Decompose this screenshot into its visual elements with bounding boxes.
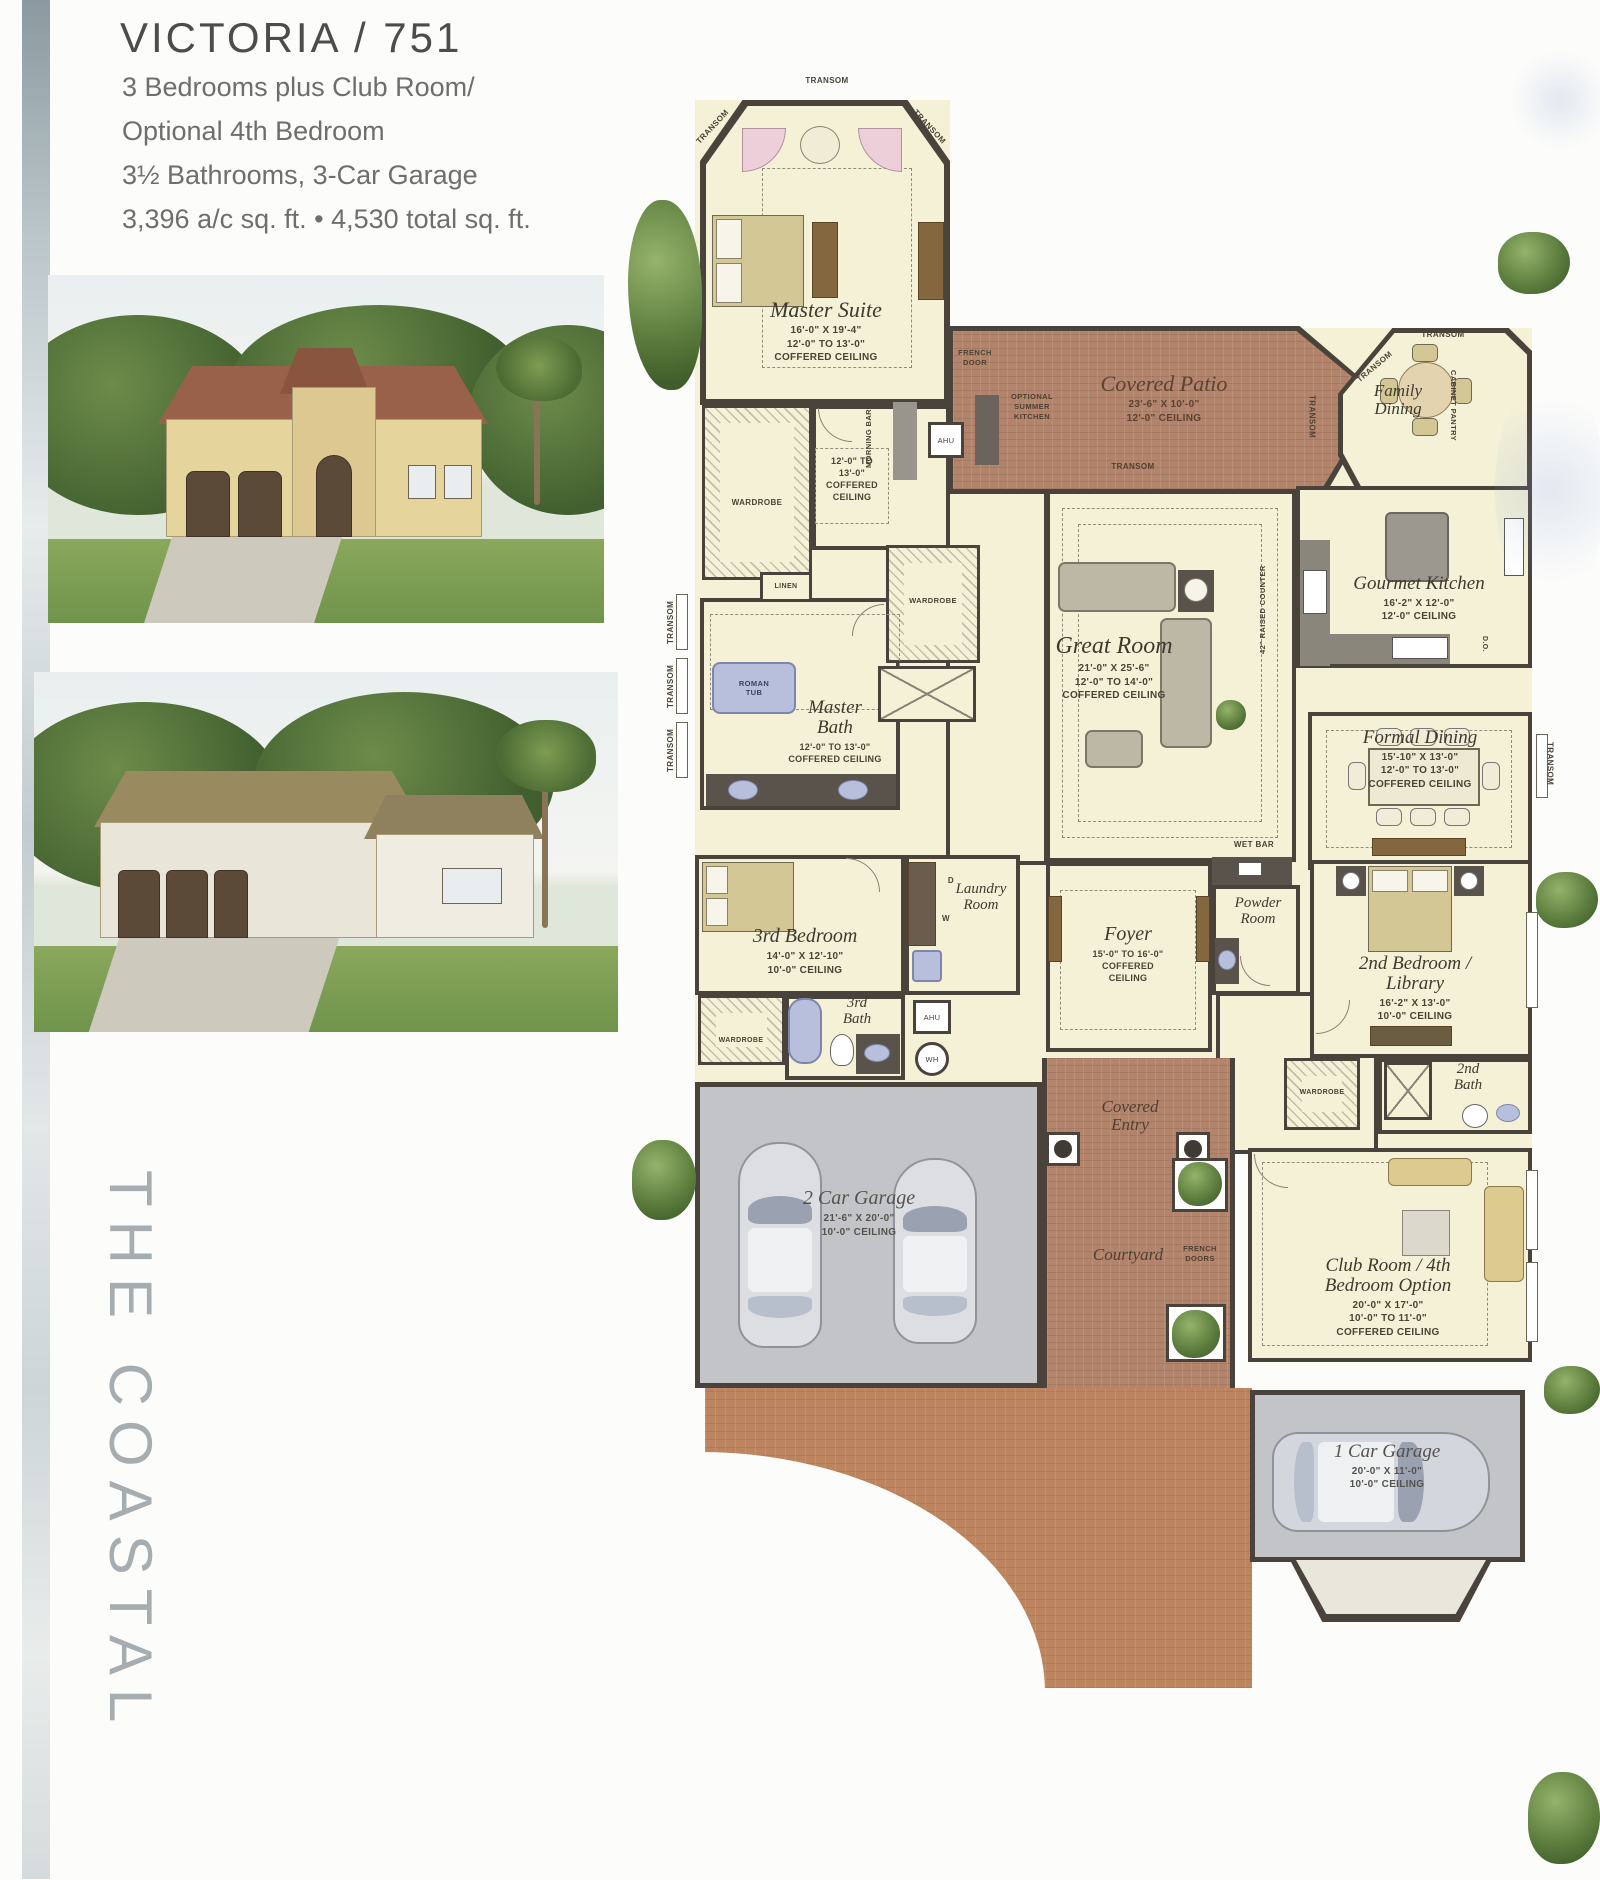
bay-table (800, 126, 840, 164)
chair (1444, 808, 1470, 826)
room-name: Master Suite (756, 298, 896, 321)
line: 12'-0" TO (818, 455, 886, 467)
room-name: Bath (822, 1012, 892, 1028)
column (1054, 1140, 1072, 1158)
room-ceiling: 12'-0" TO 13'-0" (1348, 764, 1492, 778)
do-label: D.O. (1480, 630, 1489, 658)
room-ceiling-type: COFFERED CEILING (1308, 1326, 1468, 1340)
pillow (716, 219, 742, 259)
room-dims: 21'-0" X 25'-6" (1028, 662, 1200, 676)
palm-canopy (496, 337, 582, 401)
console-table (1048, 896, 1062, 962)
room-dims: 16'-2" X 13'-0" (1340, 997, 1490, 1011)
transom-label: TRANSOM (666, 594, 676, 650)
chair (1410, 808, 1436, 826)
landscape-tree (1528, 1772, 1600, 1864)
room-dims: 21'-6" X 20'-0" (788, 1212, 930, 1226)
chair (1412, 344, 1438, 362)
plan-description-line-3: 3½ Bathrooms, 3-Car Garage (122, 160, 642, 191)
line: CEILING (1078, 972, 1178, 984)
third-bath-tub (788, 998, 822, 1064)
scan-artifact (1495, 370, 1600, 610)
line: COFFERED (818, 479, 886, 491)
lamp (1342, 872, 1360, 890)
summer-kitchen-counter (975, 395, 999, 465)
dresser (918, 222, 944, 300)
club-room-label: Club Room / 4th Bedroom Option 20'-0" X … (1308, 1256, 1468, 1339)
sofa (1058, 562, 1176, 612)
room-name: Bath (1438, 1078, 1498, 1094)
brochure-page: { "header": { "title": "VICTORIA / 751",… (0, 0, 1600, 1879)
dresser (1370, 1026, 1452, 1046)
sink (1218, 950, 1236, 970)
room-dims: 20'-0" X 17'-0" (1308, 1299, 1468, 1313)
pillow (706, 866, 728, 894)
room-ceiling: 12'-0" TO 13'-0" (756, 338, 896, 352)
lamp (1460, 872, 1478, 890)
car-roof (903, 1236, 967, 1292)
garage-door-bay (1296, 1560, 1486, 1614)
landscape-tree (1536, 872, 1598, 928)
palm-canopy (496, 720, 596, 792)
room-ceiling: 10'-0" CEILING (788, 1226, 930, 1240)
formal-dining-label: Formal Dining 15'-10" X 13'-0" 12'-0" TO… (1348, 728, 1492, 791)
exterior-rendering-2 (34, 672, 618, 1032)
chair (1376, 808, 1402, 826)
car-rear-window (1294, 1442, 1314, 1522)
washer (912, 950, 942, 982)
room-name: Bedroom Option (1308, 1276, 1468, 1296)
line: CEILING (818, 491, 886, 503)
french-door-label: FRENCH DOOR (950, 348, 1000, 368)
room-name: Club Room / 4th (1308, 1256, 1468, 1276)
entry-arch (316, 455, 352, 537)
transom-label: TRANSOM (1544, 734, 1554, 794)
room-dims: 20'-0" X 11'-0" (1322, 1465, 1452, 1479)
garage-door (166, 870, 208, 938)
courtyard-label: Courtyard (1078, 1246, 1178, 1264)
pillow (706, 898, 728, 926)
wardrobe-label: WARDROBE (712, 498, 802, 508)
summer-kitchen-label: OPTIONAL SUMMER KITCHEN (1002, 392, 1062, 421)
transom-label: TRANSOM (1306, 388, 1316, 446)
ahu-label: AHU (938, 436, 955, 445)
landscape-tree (1498, 232, 1570, 294)
water-heater: WH (915, 1042, 949, 1076)
second-bath-label: 2nd Bath (1438, 1062, 1498, 1094)
kitchen-sink (1392, 637, 1448, 659)
room-name: Covered (1082, 1098, 1178, 1116)
buffet (1372, 838, 1466, 856)
wh-label: WH (925, 1055, 938, 1064)
room-ceiling-type: COFFERED CEILING (1348, 778, 1492, 792)
dryer-label: D (946, 876, 956, 886)
scan-artifact (1510, 50, 1600, 150)
room-name: 1 Car Garage (1322, 1442, 1452, 1462)
wardrobe-label: WARDROBE (898, 596, 968, 606)
room-name: 2nd Bedroom / (1340, 954, 1490, 974)
third-bedroom-label: 3rd Bedroom 14'-0" X 12'-10" 10'-0" CEIL… (740, 926, 870, 977)
driveway (144, 537, 342, 623)
pillow (1372, 870, 1408, 892)
master-wardrobe-1 (702, 405, 812, 580)
window (1526, 1262, 1538, 1342)
line: COFFERED (1078, 960, 1178, 972)
wardrobe-label: WARDROBE (708, 1036, 774, 1045)
toilet (830, 1034, 854, 1066)
foyer-label: Foyer 15'-0" TO 16'-0" COFFERED CEILING (1078, 924, 1178, 984)
wardrobe-label: WARDROBE (1292, 1088, 1352, 1097)
sink (864, 1044, 890, 1062)
sink (1496, 1104, 1520, 1122)
covered-patio-label: Covered Patio 23'-6" X 10'-0" 12'-0" CEI… (1096, 372, 1232, 425)
garage-door (186, 471, 230, 537)
window (676, 658, 688, 714)
family-dining-label: Family Dining (1352, 382, 1444, 418)
plan-description-line-1: 3 Bedrooms plus Club Room/ (122, 72, 642, 103)
room-name: Formal Dining (1348, 728, 1492, 748)
room-ceiling: 12'-0" CEILING (1096, 412, 1232, 426)
room-ceiling: 10'-0" CEILING (740, 964, 870, 978)
room-ceiling: 10'-0" TO 11'-0" (1308, 1312, 1468, 1326)
plan-description-line-2: Optional 4th Bedroom (122, 116, 642, 147)
third-bath-label: 3rd Bath (822, 996, 892, 1028)
laundry-label: Laundry Room (942, 882, 1020, 914)
powder-label: Powder Room (1218, 896, 1298, 928)
great-room-label: Great Room 21'-0" X 25'-6" 12'-0" TO 14'… (1028, 634, 1200, 703)
ahu-closet-2: AHU (913, 1000, 951, 1034)
room-name: Great Room (1028, 634, 1200, 659)
garage-door (238, 471, 282, 537)
driveway (89, 938, 340, 1032)
palm-trunk (542, 768, 548, 928)
page-title: VICTORIA / 751 (120, 14, 462, 62)
room-name: 2 Car Garage (788, 1188, 930, 1209)
landscape-tree (1544, 1366, 1600, 1414)
console-table (1196, 896, 1210, 962)
window (1526, 1170, 1538, 1250)
line: 13'-0" (818, 467, 886, 479)
room-ceiling: 10'-0" CEILING (1340, 1010, 1490, 1024)
garage-door (214, 870, 248, 938)
raised-counter-label: 42" RAISED COUNTER (1258, 554, 1268, 666)
exterior-rendering-1 (48, 275, 604, 623)
chair (1412, 418, 1438, 436)
room-dims: 16'-0" X 19'-4" (756, 324, 896, 338)
column (1184, 1140, 1202, 1158)
washer-label: W (941, 914, 951, 924)
sink (728, 780, 758, 800)
room-ceiling-type: COFFERED CEILING (770, 753, 900, 765)
linen-label: LINEN (764, 582, 808, 591)
second-bedroom-label: 2nd Bedroom / Library 16'-2" X 13'-0" 10… (1340, 954, 1490, 1024)
club-sofa (1484, 1186, 1524, 1282)
room-name: Entry (1082, 1116, 1178, 1134)
loveseat (1085, 730, 1143, 768)
room-name: Courtyard (1078, 1246, 1178, 1264)
dresser (812, 222, 838, 298)
master-suite-label: Master Suite 16'-0" X 19'-4" 12'-0" TO 1… (756, 298, 896, 365)
transom-label: TRANSOM (1414, 330, 1472, 340)
room-name: Bath (770, 718, 900, 738)
room-ceiling-type: COFFERED CEILING (1028, 689, 1200, 703)
room-ceiling: 15'-0" TO 16'-0" (1078, 948, 1178, 960)
room-name: Covered Patio (1096, 372, 1232, 395)
transom-label: TRANSOM (666, 658, 676, 714)
laundry-cabinets (908, 862, 936, 946)
car-rear-window (903, 1296, 967, 1316)
room-ceiling: 10'-0" CEILING (1322, 1478, 1452, 1492)
third-bedroom-wardrobe (698, 995, 785, 1065)
morning-bar-counter (893, 402, 917, 480)
room-ceiling-type: COFFERED CEILING (756, 351, 896, 365)
wing-roof (364, 792, 544, 839)
morning-bar-label: MORNING BAR (864, 396, 874, 482)
palm-trunk (534, 385, 540, 505)
toilet (1462, 1104, 1488, 1128)
window (444, 465, 472, 499)
sitting-ceiling-label: 12'-0" TO 13'-0" COFFERED CEILING (818, 452, 886, 504)
room-name: Gourmet Kitchen (1336, 574, 1502, 594)
wet-bar-sink (1238, 862, 1262, 876)
room-name: 3rd (822, 996, 892, 1012)
room-name: Powder (1218, 896, 1298, 912)
cabinet-pantry-label: CABINET PANTRY (1448, 364, 1458, 448)
window (676, 722, 688, 778)
one-car-garage-label: 1 Car Garage 20'-0" X 11'-0" 10'-0" CEIL… (1322, 1442, 1452, 1492)
sink (838, 780, 868, 800)
room-ceiling: 12'-0" TO 13'-0" (770, 741, 900, 753)
club-sofa-2 (1388, 1158, 1472, 1186)
ahu-closet: AHU (928, 422, 964, 458)
gourmet-kitchen-label: Gourmet Kitchen 16'-2" X 12'-0" 12'-0" C… (1336, 574, 1502, 624)
room-ceiling: 12'-0" CEILING (1336, 610, 1502, 624)
room-name: 2nd (1438, 1062, 1498, 1078)
game-table (1402, 1210, 1450, 1256)
room-dims: 14'-0" X 12'-10" (740, 950, 870, 964)
plan-square-footage: 3,396 a/c sq. ft. • 4,530 total sq. ft. (122, 204, 642, 235)
second-bath-shower (1384, 1062, 1432, 1120)
covered-entry-label: Covered Entry (1082, 1098, 1178, 1134)
room-ceiling: 12'-0" TO 14'-0" (1028, 676, 1200, 690)
room-dims: 15'-10" X 13'-0" (1348, 751, 1492, 765)
series-label-the-coastal: THE COASTAL (96, 1170, 165, 1880)
landscape-tree (632, 1140, 696, 1220)
window (676, 594, 688, 650)
room-name: Room (1218, 912, 1298, 928)
room-dims: 23'-6" X 10'-0" (1096, 398, 1232, 412)
master-bath-label: Master Bath 12'-0" TO 13'-0" COFFERED CE… (770, 698, 900, 765)
pillow (1412, 870, 1448, 892)
room-name: Foyer (1078, 924, 1178, 945)
room-name: Dining (1352, 400, 1444, 418)
lamp (1184, 578, 1208, 602)
pillow (716, 263, 742, 303)
room-name: Library (1340, 974, 1490, 994)
window (442, 868, 502, 904)
car-rear-window (748, 1296, 812, 1318)
garage-door (118, 870, 160, 938)
room-name: Family (1352, 382, 1444, 400)
two-car-garage-label: 2 Car Garage 21'-6" X 20'-0" 10'-0" CEIL… (788, 1188, 930, 1239)
landscape-tree (628, 200, 702, 390)
roman-tub-label: ROMAN TUB (734, 679, 774, 697)
room-name: 3rd Bedroom (740, 926, 870, 947)
transom-label: TRANSOM (798, 76, 856, 86)
room-name: Master (770, 698, 900, 718)
wet-bar-label: WET BAR (1218, 840, 1290, 850)
range (1303, 570, 1327, 614)
room-name: Room (942, 898, 1020, 914)
window (408, 465, 436, 499)
french-doors-label: FRENCH DOORS (1174, 1244, 1226, 1264)
transom-label: TRANSOM (666, 722, 676, 778)
kitchen-island (1385, 512, 1449, 582)
window (1526, 912, 1538, 1008)
transom-label: TRANSOM (1104, 462, 1162, 472)
room-dims: 16'-2" X 12'-0" (1336, 597, 1502, 611)
ahu-label: AHU (924, 1013, 941, 1022)
